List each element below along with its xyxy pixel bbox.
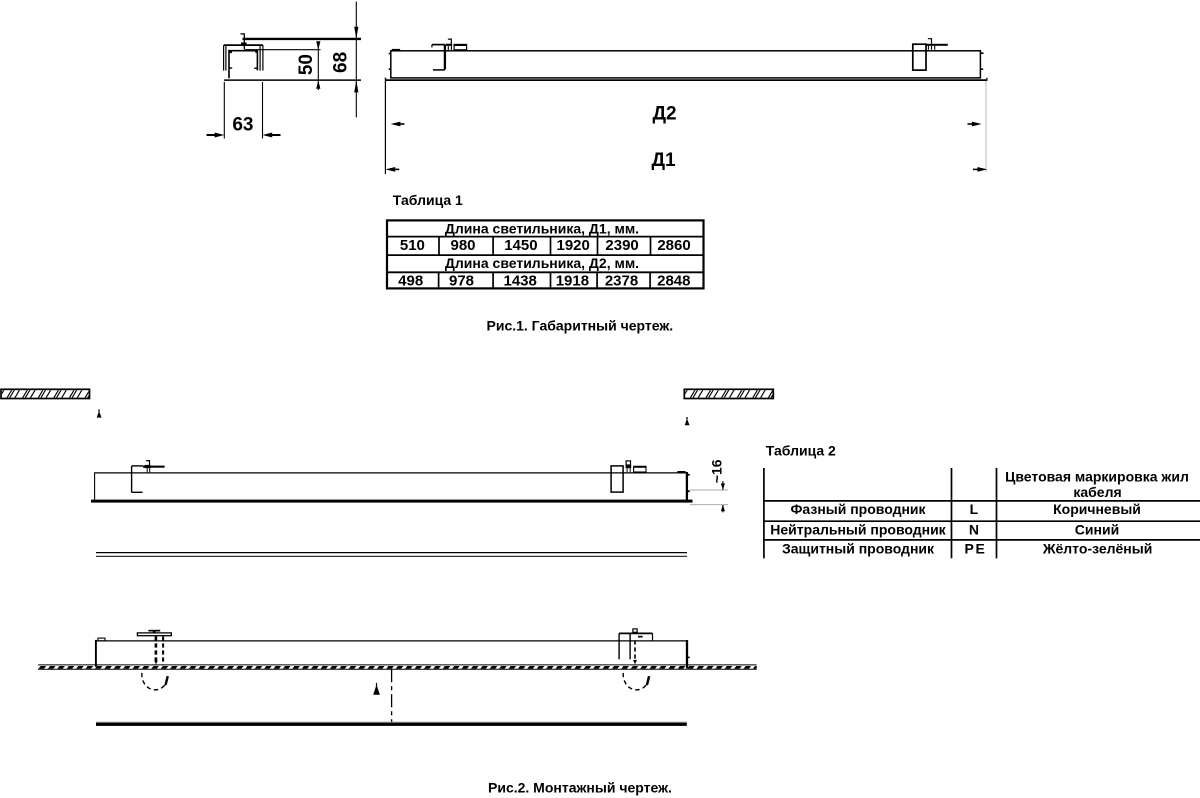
svg-text:Рис.1. Габаритный чертеж.: Рис.1. Габаритный чертеж. bbox=[487, 318, 674, 334]
svg-text:498: 498 bbox=[398, 273, 423, 290]
svg-text:Длина светильника, Д1, мм.: Длина светильника, Д1, мм. bbox=[445, 221, 639, 237]
svg-text:Таблица 2: Таблица 2 bbox=[766, 443, 836, 459]
svg-text:~16: ~16 bbox=[709, 459, 725, 483]
svg-text:63: 63 bbox=[232, 114, 253, 135]
svg-text:50: 50 bbox=[296, 54, 317, 75]
svg-text:Синий: Синий bbox=[1075, 521, 1119, 537]
svg-text:68: 68 bbox=[330, 52, 351, 73]
svg-text:1450: 1450 bbox=[504, 237, 537, 254]
svg-text:Д1: Д1 bbox=[651, 150, 676, 171]
svg-text:2378: 2378 bbox=[605, 273, 638, 290]
svg-text:Фазный проводник: Фазный проводник bbox=[790, 501, 926, 517]
svg-text:980: 980 bbox=[450, 237, 475, 254]
svg-text:L: L bbox=[970, 501, 979, 517]
svg-text:Таблица 1: Таблица 1 bbox=[393, 192, 463, 208]
svg-text:2848: 2848 bbox=[657, 273, 690, 290]
svg-text:Коричневый: Коричневый bbox=[1053, 501, 1141, 517]
svg-text:1920: 1920 bbox=[557, 237, 590, 254]
svg-text:Нейтральный проводник: Нейтральный проводник bbox=[770, 521, 946, 537]
svg-text:Цветовая маркировка жил: Цветовая маркировка жил bbox=[1005, 469, 1189, 485]
svg-text:N: N bbox=[969, 521, 979, 537]
svg-text:Рис.2. Монтажный чертеж.: Рис.2. Монтажный чертеж. bbox=[488, 779, 672, 795]
svg-text:Д2: Д2 bbox=[652, 103, 676, 124]
svg-text:Защитный проводник: Защитный проводник bbox=[782, 540, 935, 556]
svg-text:PE: PE bbox=[965, 540, 987, 556]
svg-text:1438: 1438 bbox=[504, 273, 537, 290]
svg-text:2860: 2860 bbox=[657, 237, 690, 254]
svg-text:978: 978 bbox=[449, 273, 474, 290]
svg-text:2390: 2390 bbox=[605, 237, 638, 254]
svg-text:Жёлто-зелёный: Жёлто-зелёный bbox=[1042, 540, 1152, 556]
svg-text:1918: 1918 bbox=[556, 273, 589, 290]
svg-text:510: 510 bbox=[400, 237, 425, 254]
svg-text:Длина светильника, Д2, мм.: Длина светильника, Д2, мм. bbox=[445, 255, 639, 271]
svg-text:кабеля: кабеля bbox=[1073, 484, 1121, 500]
